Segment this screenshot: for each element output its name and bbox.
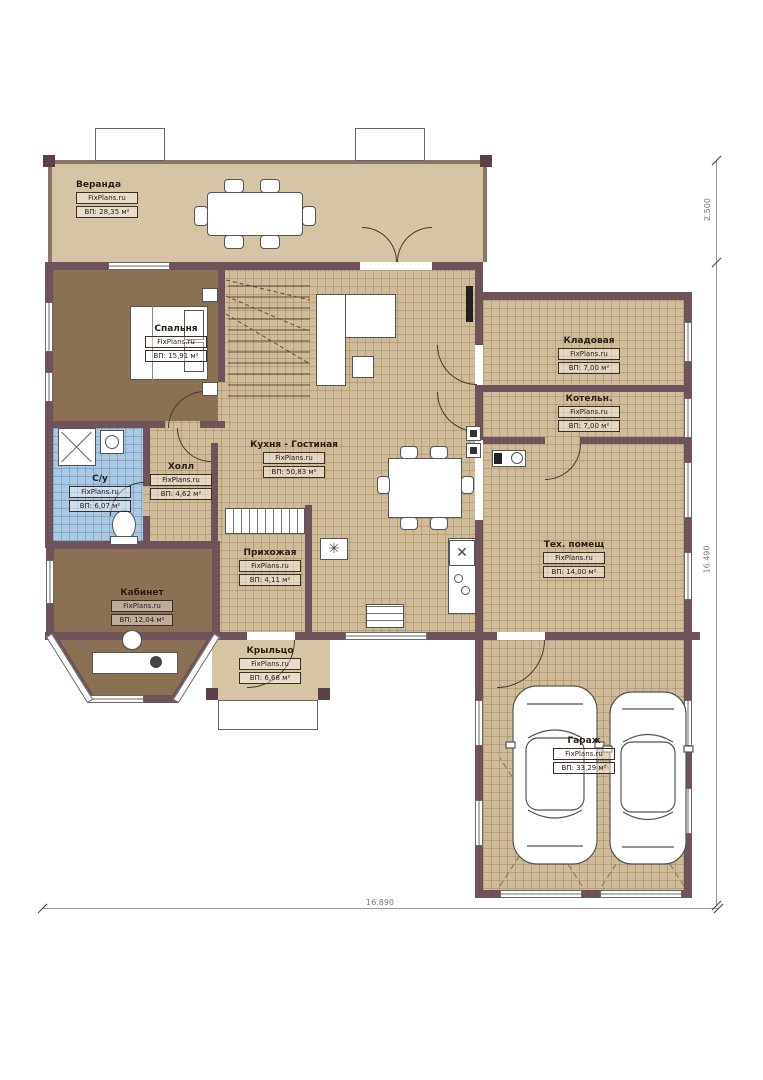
room-label-bedroom: Спальня FixPlans.ru ВП: 15,91 м² — [130, 324, 222, 362]
window — [684, 322, 692, 362]
wall — [475, 632, 483, 898]
washing-machine-drum — [105, 435, 119, 449]
room-name: Кладовая — [563, 336, 614, 346]
oven-door — [470, 430, 477, 437]
chair — [430, 517, 448, 530]
room-name: Прихожая — [243, 548, 296, 558]
room-label-hall: Холл FixPlans.ru ВП: 4,62 м² — [145, 462, 217, 500]
wall — [475, 262, 483, 345]
dimension-veranda-depth: 2.500 — [703, 198, 712, 221]
watermark: FixPlans.ru — [69, 486, 131, 498]
room-area: ВП: 4,62 м² — [150, 488, 212, 500]
room-name: Кухня - Гостиная — [250, 440, 338, 450]
room-area: ВП: 14,00 м² — [543, 566, 605, 578]
window — [108, 262, 170, 270]
window — [45, 302, 53, 352]
dimension-line-right — [716, 160, 717, 905]
room-name: Гараж — [567, 736, 600, 746]
wall — [45, 262, 360, 270]
room-label-bathroom: С/у FixPlans.ru ВП: 6,07 м² — [62, 474, 138, 512]
room-area: ВП: 28,35 м² — [76, 206, 138, 218]
veranda-steps — [355, 128, 425, 161]
watermark: FixPlans.ru — [553, 748, 615, 760]
chair — [400, 517, 418, 530]
room-name: Веранда — [76, 180, 121, 190]
oven — [466, 426, 481, 441]
chair — [224, 179, 244, 193]
room-label-tech: Тех. помещ FixPlans.ru ВП: 14,00 м² — [528, 540, 620, 578]
tv — [466, 286, 473, 322]
chair — [194, 206, 208, 226]
watermark: FixPlans.ru — [558, 348, 620, 360]
wall — [483, 292, 692, 300]
room-name: Спальня — [154, 324, 197, 334]
wall — [483, 385, 692, 392]
wall — [483, 437, 545, 444]
wall — [545, 632, 700, 640]
watermark: FixPlans.ru — [76, 192, 138, 204]
nightstand — [202, 288, 218, 302]
window — [684, 462, 692, 518]
tech-appliance — [494, 453, 502, 464]
cooktop-icon: ✳ — [320, 538, 348, 560]
room-name: Кабинет — [120, 588, 164, 598]
watermark: FixPlans.ru — [543, 552, 605, 564]
garage-door — [500, 890, 582, 898]
wall — [582, 890, 600, 898]
room-area: ВП: 12,04 м² — [111, 614, 173, 626]
dimension-line-bottom — [42, 908, 718, 909]
porch-steps — [218, 700, 318, 730]
tech-sink — [511, 452, 523, 464]
room-name: Котельн. — [566, 394, 613, 404]
room-area: ВП: 7,00 м² — [558, 362, 620, 374]
room-area: ВП: 50,83 м² — [263, 466, 325, 478]
window — [684, 398, 692, 438]
kitchen-table — [388, 458, 462, 518]
window — [475, 700, 483, 746]
room-name: С/у — [92, 474, 108, 484]
window — [475, 800, 483, 846]
veranda-wall-left — [48, 160, 52, 262]
watermark: FixPlans.ru — [111, 600, 173, 612]
room-label-boiler: Котельн. FixPlans.ru ВП: 7,00 м² — [544, 394, 634, 432]
watermark: FixPlans.ru — [239, 658, 301, 670]
chair — [400, 446, 418, 459]
nightstand — [202, 382, 218, 396]
burner — [461, 586, 470, 595]
wall — [475, 520, 483, 640]
chair — [302, 206, 316, 226]
sofa-chaise — [316, 294, 346, 386]
chair — [461, 476, 474, 494]
wall — [475, 890, 500, 898]
room-area: ВП: 4,11 м² — [239, 574, 301, 586]
desk-chair — [122, 630, 142, 650]
room-area: ВП: 33,29 м² — [553, 762, 615, 774]
window — [45, 372, 53, 402]
watermark: FixPlans.ru — [263, 452, 325, 464]
desk-lamp — [150, 656, 162, 668]
room-label-porch: Крыльцо FixPlans.ru ВП: 6,68 м² — [228, 646, 312, 684]
desk — [92, 652, 178, 674]
wall — [53, 421, 165, 428]
room-area: ВП: 6,68 м² — [239, 672, 301, 684]
porch-column — [206, 688, 218, 700]
room-area: ВП: 15,91 м² — [145, 350, 207, 362]
room-name: Тех. помещ — [544, 540, 604, 550]
room-label-storage: Кладовая FixPlans.ru ВП: 7,00 м² — [544, 336, 634, 374]
room-name: Холл — [168, 462, 194, 472]
window — [46, 560, 54, 604]
chair — [260, 179, 280, 193]
sink-icon: ✕ — [449, 540, 475, 566]
window — [684, 552, 692, 600]
wall — [143, 516, 150, 541]
veranda-steps — [95, 128, 165, 161]
oven — [466, 443, 481, 458]
room-label-kitchen-living: Кухня - Гостиная FixPlans.ru ВП: 50,83 м… — [248, 440, 340, 478]
window — [88, 695, 144, 703]
room-label-entry-hall: Прихожая FixPlans.ru ВП: 4,11 м² — [228, 548, 312, 586]
coffee-table — [352, 356, 374, 378]
watermark: FixPlans.ru — [145, 336, 207, 348]
window — [684, 788, 692, 834]
watermark: FixPlans.ru — [239, 560, 301, 572]
floor-plan: ✳ ✕ — [0, 0, 763, 1080]
oven-door — [470, 447, 477, 454]
chair — [224, 235, 244, 249]
room-name: Крыльцо — [246, 646, 293, 656]
room-area: ВП: 6,07 м² — [69, 500, 131, 512]
room-label-veranda: Веранда FixPlans.ru ВП: 28,35 м² — [76, 180, 138, 218]
window — [345, 632, 427, 640]
garage-door — [600, 890, 682, 898]
toilet-tank — [110, 536, 138, 545]
corner-block — [43, 155, 55, 167]
chair — [430, 446, 448, 459]
room-label-garage: Гараж FixPlans.ru ВП: 33,29 м² — [542, 736, 626, 774]
wall — [684, 632, 692, 898]
burner — [454, 574, 463, 583]
veranda-wall-right — [483, 160, 487, 262]
wardrobe — [225, 508, 305, 534]
window — [684, 700, 692, 746]
room-label-study: Кабинет FixPlans.ru ВП: 12,04 м² — [100, 588, 184, 626]
dining-table — [207, 192, 303, 236]
chair — [377, 476, 390, 494]
dimension-house-depth: 16.490 — [703, 546, 712, 574]
porch-column — [318, 688, 330, 700]
watermark: FixPlans.ru — [558, 406, 620, 418]
room-area: ВП: 7,00 м² — [558, 420, 620, 432]
wall — [580, 437, 692, 444]
radiator — [366, 604, 404, 628]
chair — [260, 235, 280, 249]
corner-block — [480, 155, 492, 167]
dimension-house-width: 16.890 — [340, 898, 420, 907]
watermark: FixPlans.ru — [150, 474, 212, 486]
wall — [682, 890, 692, 898]
